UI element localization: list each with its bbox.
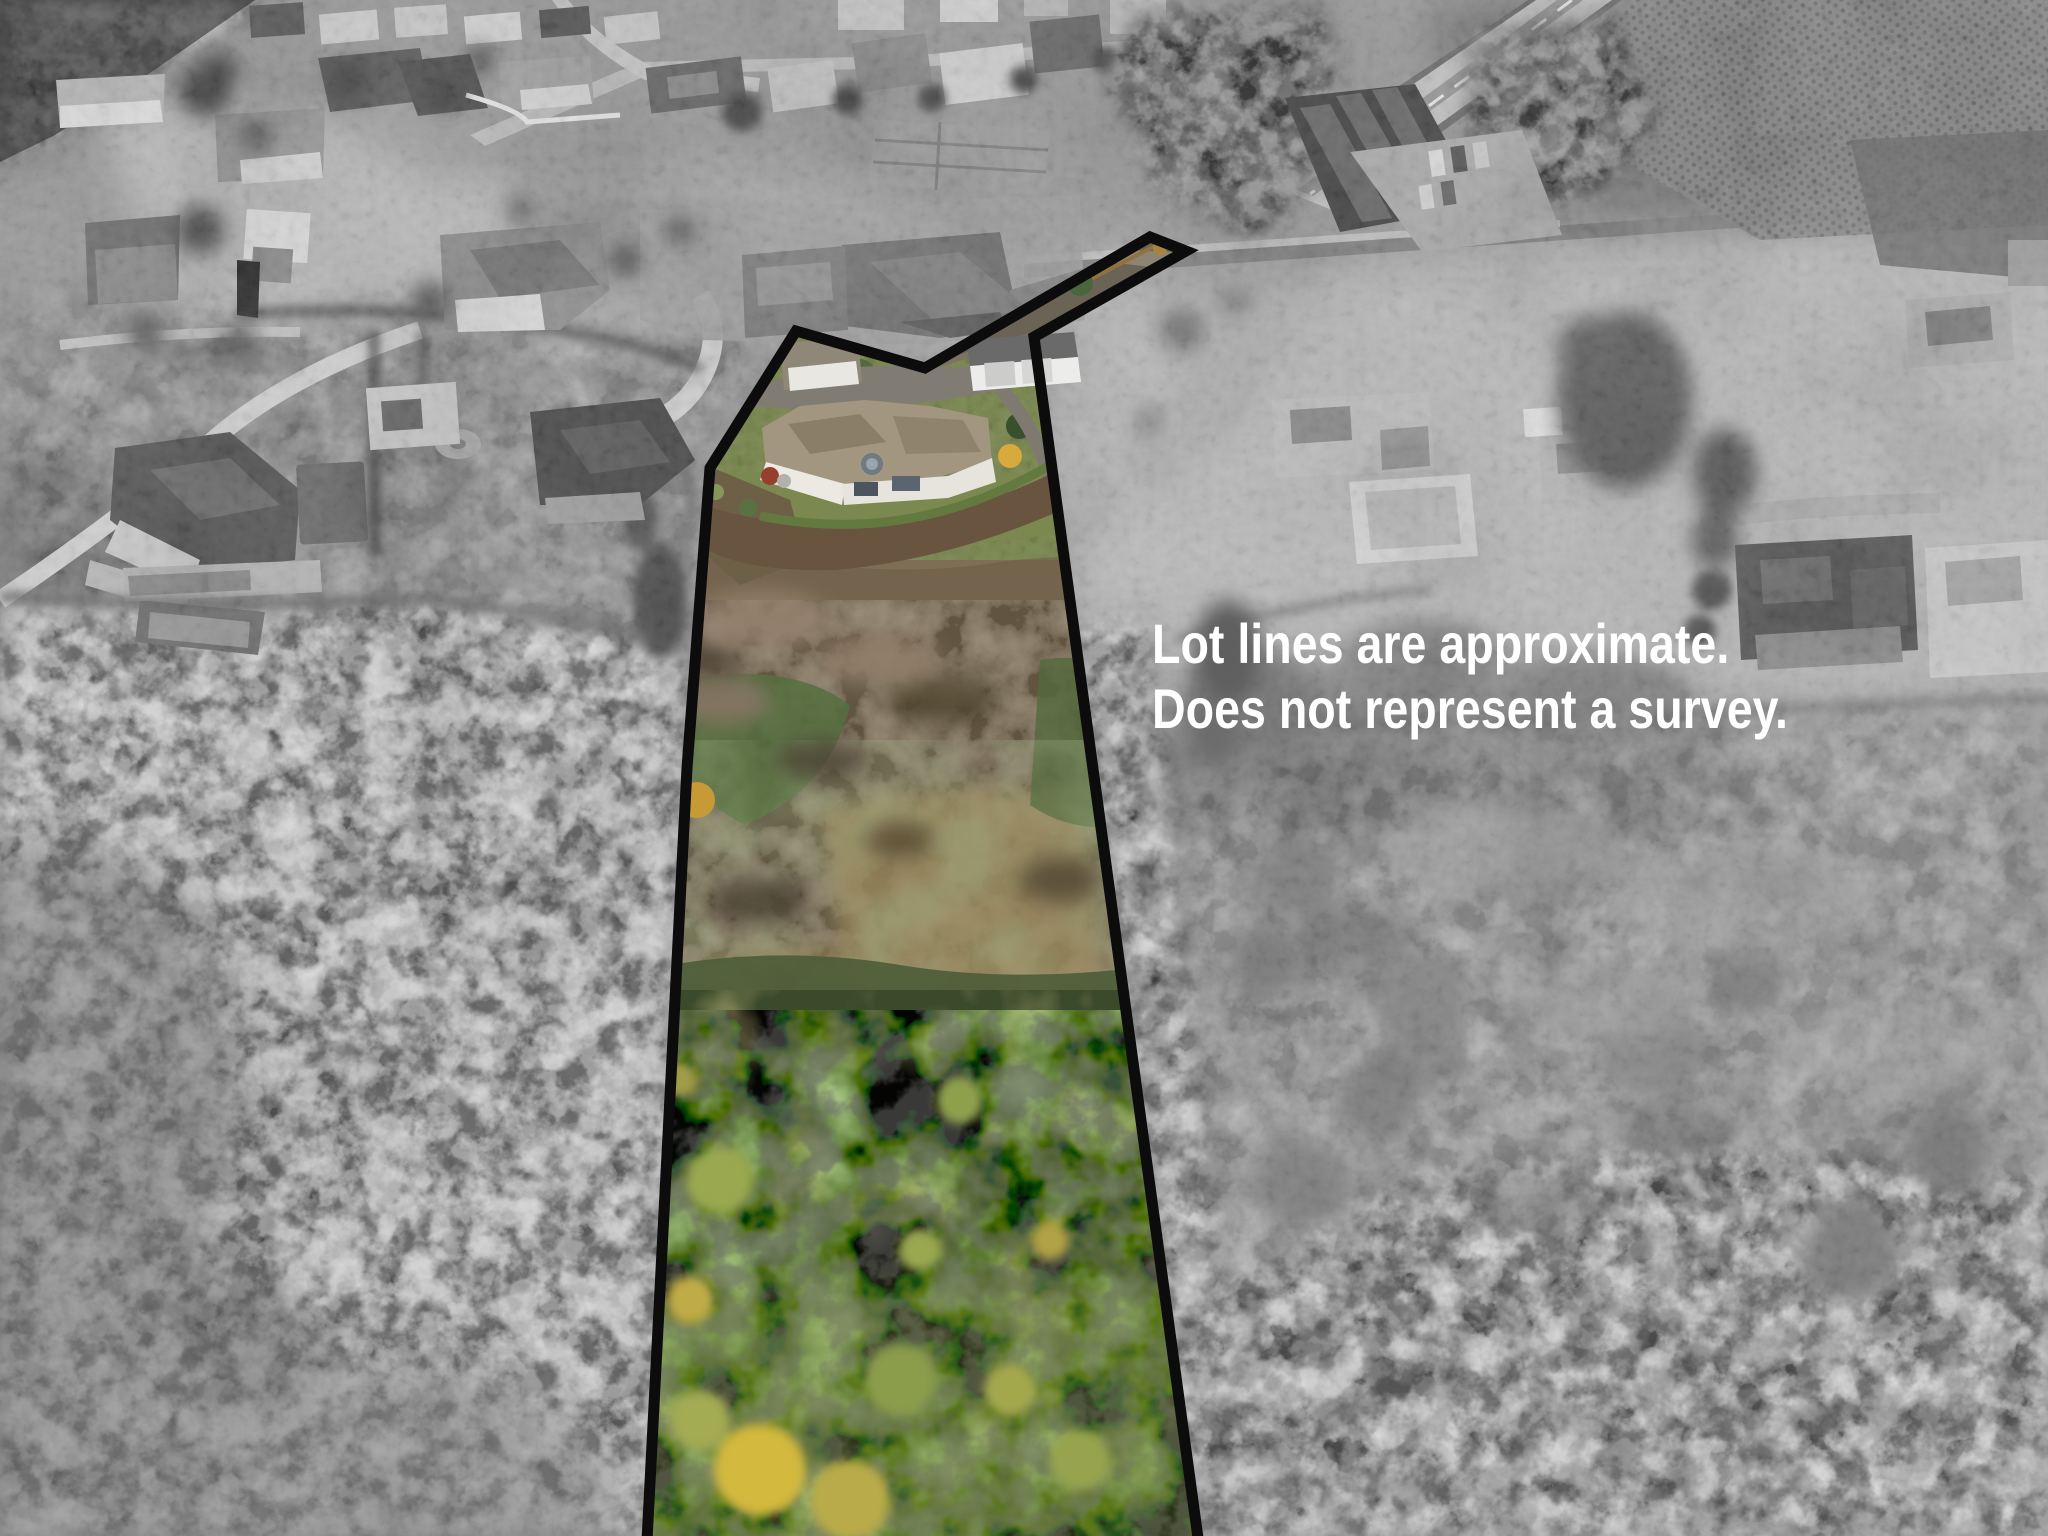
svg-text:Lot lines are approximate.: Lot lines are approximate. [1152, 612, 1729, 675]
svg-text:Does not represent a survey.: Does not represent a survey. [1152, 677, 1788, 740]
